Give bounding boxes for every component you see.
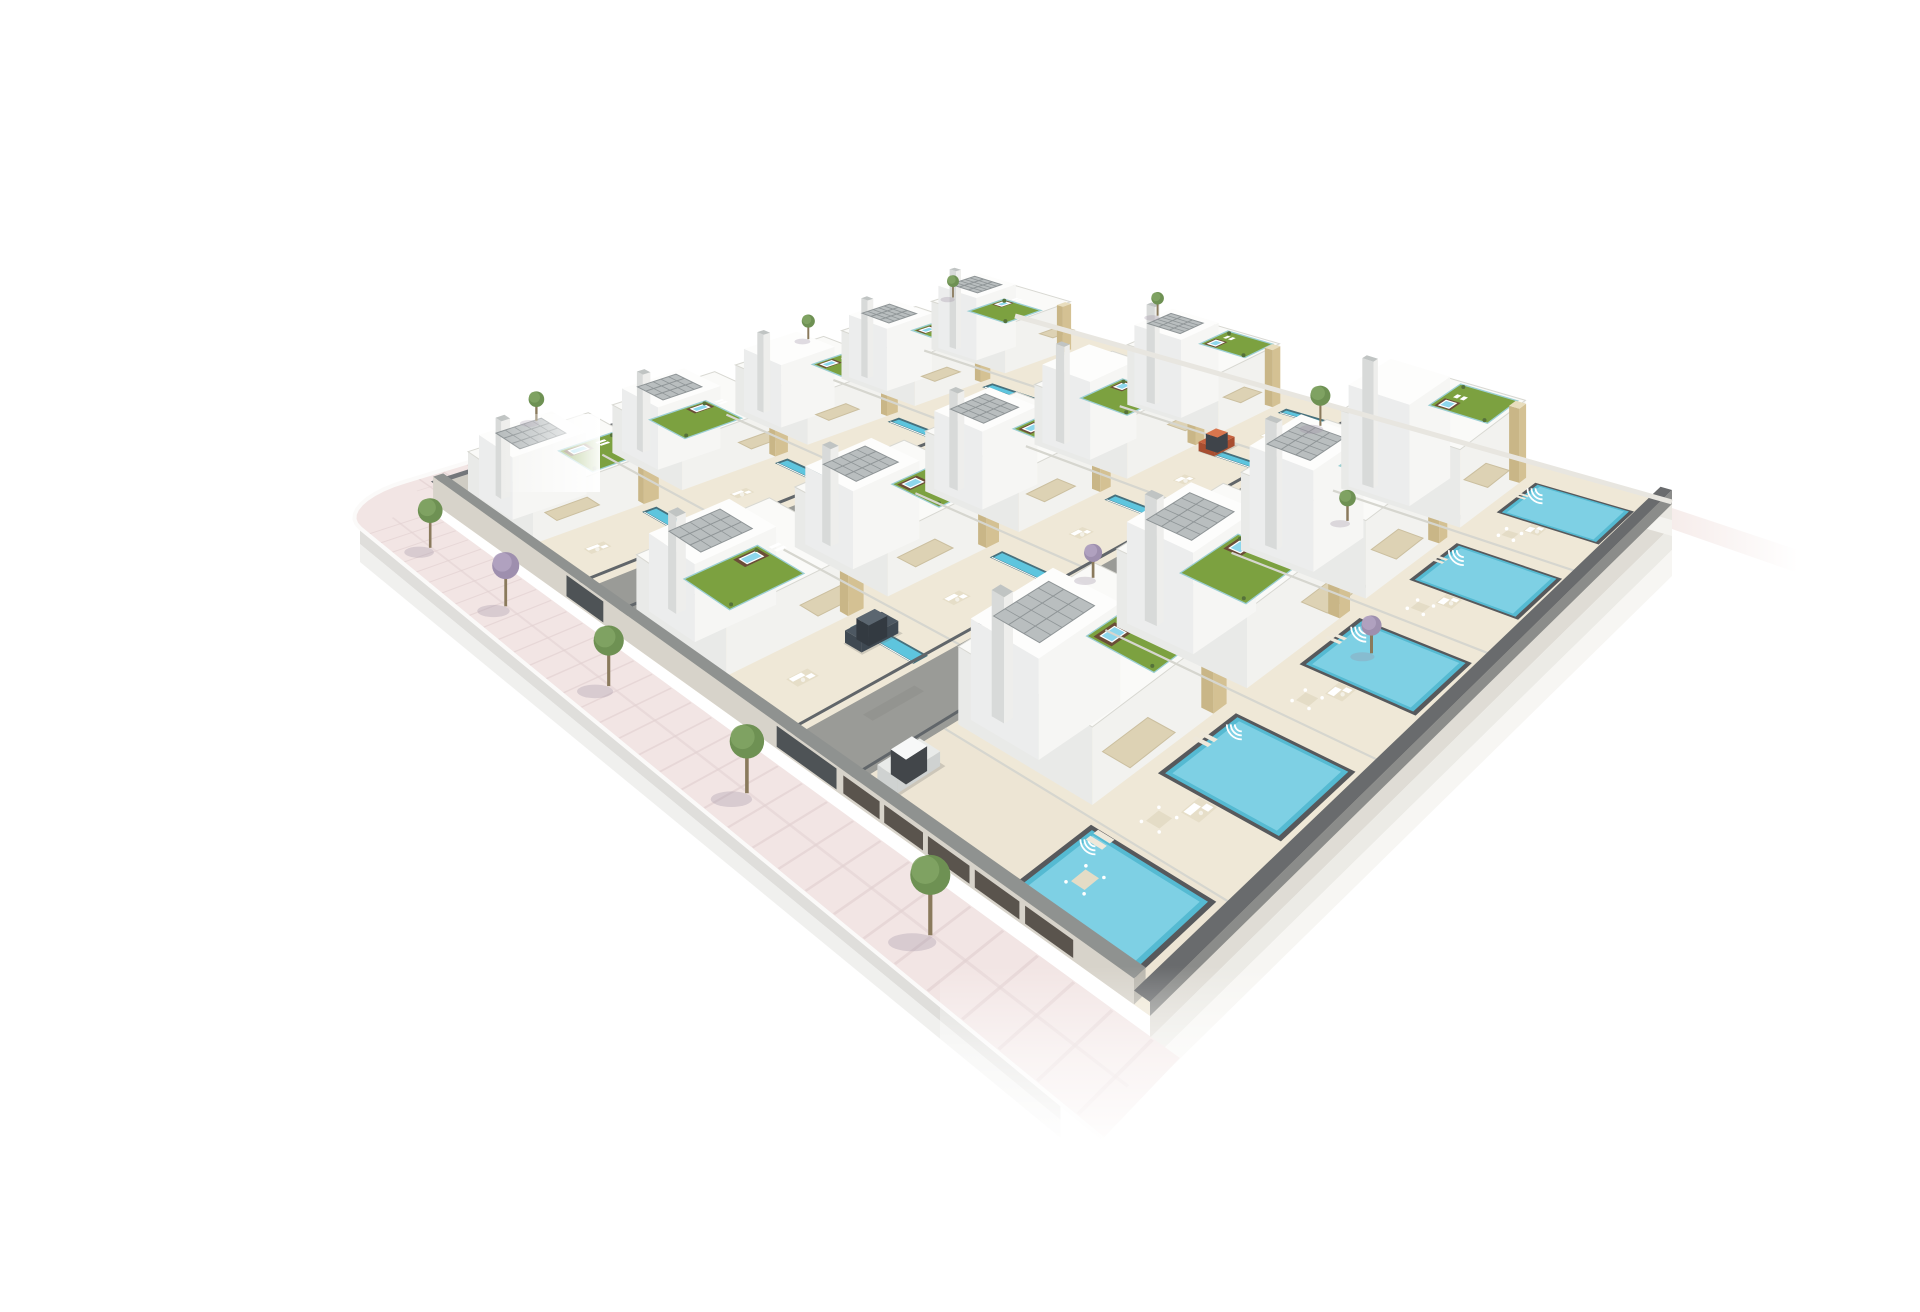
row2-villa4-chimney-left-face (1056, 344, 1064, 444)
row3-villa4-dining-chair (1512, 538, 1516, 542)
tree-foliage-highlight (802, 315, 811, 324)
tree-shadow (711, 791, 752, 807)
row2-villa4-roof-plant (1124, 410, 1128, 414)
row3-villa4-rear-block-left-face (1349, 385, 1410, 506)
tree-shadow (1299, 425, 1323, 434)
tree-foliage-highlight (594, 626, 615, 647)
row1-villa1-chimney-left-face (496, 418, 502, 499)
row3-villa2-dining-chair (1320, 696, 1324, 700)
row3-villa3-chimney-left-face (1265, 419, 1277, 550)
tree-shadow (1144, 315, 1159, 321)
row3-villa4-dining-chair (1497, 534, 1501, 538)
row2-villa1-chimney-left-face (668, 512, 676, 615)
row1-villa3-chimney-front-face (764, 333, 771, 413)
row2-villa3-chimney-left-face (949, 390, 958, 491)
tree-shadow (1330, 520, 1350, 527)
row3-villa1-dining-chair (1157, 806, 1161, 810)
row3-villa3-dining-chair (1422, 613, 1426, 617)
tree-foliage-highlight (1084, 544, 1097, 557)
tree-shadow (404, 547, 434, 558)
row2-villa5-roof-plant (1227, 331, 1231, 335)
row2-villa4-sofa-table (1183, 479, 1187, 483)
row3-villa2-dining-chair (1304, 688, 1308, 692)
row3-villa1-dining-chair (1157, 830, 1161, 834)
architectural-render: Aerial 3D render of a gated residential … (40, 16, 1920, 1296)
tree-foliage-highlight (529, 392, 540, 403)
garage-court-dining-chair (1064, 880, 1068, 884)
row3-villa2-sofa-table (1340, 692, 1344, 696)
row3-villa2-roof-plant (1242, 596, 1246, 600)
row2-villa3-sofa-table (1080, 532, 1084, 536)
row2-villa5-roof-plant (1242, 353, 1246, 357)
row3-villa4-dining-chair (1520, 532, 1524, 536)
garage-court-dining-chair (1084, 864, 1088, 868)
tree-foliage-highlight (1152, 292, 1161, 301)
row2-villa1-roof-plant (729, 602, 733, 606)
row3-villa4-chimney-left-face (1362, 358, 1373, 488)
tree-foliage-highlight (947, 276, 955, 284)
tree-foliage-highlight (1362, 616, 1376, 630)
row3-villa4-dining-chair (1505, 527, 1509, 531)
row3-villa3-sofa-table (1449, 601, 1453, 605)
row1-villa3-chimney-left-face (757, 332, 763, 413)
tree-foliage-highlight (1340, 490, 1352, 502)
row3-villa1-dining-chair (1140, 820, 1144, 824)
render-canvas (40, 16, 1920, 1296)
row1-villa4-chimney-left-face (861, 298, 867, 378)
row3-villa2-dining-chair (1307, 707, 1311, 711)
garage-court-dining-chair (1082, 892, 1086, 896)
row1-villa5-roof-plant (1003, 319, 1007, 323)
row3-villa3-dining-chair (1416, 598, 1420, 602)
row3-villa4-roof-plant (1483, 418, 1487, 422)
row1-villa5-roof-plant (1002, 299, 1006, 303)
row1-villa2-roof-plant (703, 401, 707, 405)
tree-foliage-highlight (419, 499, 436, 516)
row2-villa1-sofa-table (801, 678, 805, 682)
row3-villa1-dining-chair (1175, 816, 1179, 820)
tree-shadow (795, 339, 811, 345)
row2-villa4-roof-plant (1122, 380, 1126, 384)
row3-villa4-sofa-table (1535, 529, 1539, 533)
tree-foliage-highlight (493, 553, 512, 572)
row1-villa2-sofa-table (740, 492, 744, 496)
row3-villa3-dining-chair (1406, 607, 1410, 611)
garage-court-dining-chair (1102, 876, 1106, 880)
row1-villa2-chimney-left-face (637, 372, 643, 453)
row3-villa4-stone-pillar-front-face (1519, 404, 1526, 483)
row1-villa2-roof-plant (684, 434, 688, 438)
tree-shadow (1350, 652, 1374, 661)
tree-shadow (477, 605, 509, 617)
row2-villa4-chimney-front-face (1064, 344, 1070, 444)
street-stub-right (1672, 508, 1798, 573)
row3-villa2-dining-chair (1290, 699, 1294, 703)
row2-villa1-roof-plant (754, 548, 758, 552)
row1-villa1-sofa-table (595, 547, 599, 551)
tree-foliage-highlight (911, 856, 939, 884)
tree-foliage-highlight (731, 725, 755, 749)
row2-villa5-stone-pillar-front-face (1273, 346, 1281, 407)
row3-villa4-roof-plant (1461, 385, 1465, 389)
row2-villa5-stone-pillar-left-face (1265, 348, 1273, 407)
fade-sidewalk-arm (502, 414, 600, 492)
tree-shadow (577, 685, 613, 699)
row3-villa4-chimney-front-face (1374, 359, 1378, 488)
tree-shadow (941, 297, 955, 302)
row2-villa2-sofa-table (955, 597, 959, 601)
tree-shadow (1074, 577, 1096, 585)
row3-villa1-roof-plant (1150, 664, 1154, 668)
tree-shadow (888, 933, 936, 951)
row3-villa3-dining-chair (1432, 604, 1436, 608)
tree-foliage-highlight (1311, 386, 1325, 400)
row2-villa2-chimney-left-face (822, 445, 830, 547)
row3-villa1-sofa-table (1199, 811, 1203, 815)
fade-bottom-corner (940, 966, 1400, 1156)
row3-villa4-stone-pillar-left-face (1509, 406, 1519, 483)
